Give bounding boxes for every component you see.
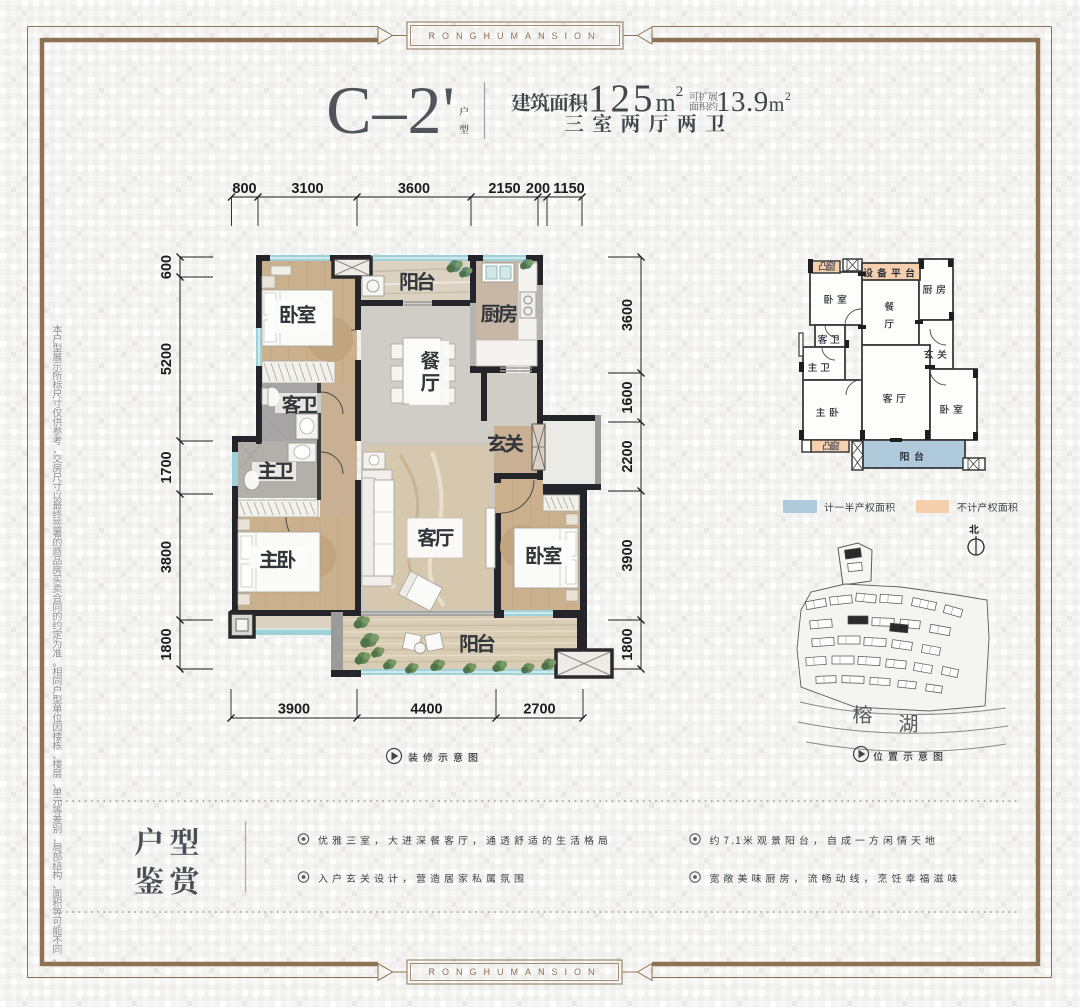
svg-text:3600: 3600 [398, 181, 430, 197]
svg-text:RONGHUMANSION: RONGHUMANSION [428, 31, 601, 41]
svg-text:1700: 1700 [159, 451, 175, 483]
svg-text:1800: 1800 [159, 628, 175, 660]
svg-text:5200: 5200 [159, 343, 175, 375]
svg-text:C–2': C–2' [326, 72, 456, 148]
svg-text:1800: 1800 [620, 628, 636, 660]
svg-text:600: 600 [159, 255, 175, 279]
svg-text:800: 800 [232, 181, 256, 197]
svg-text:2700: 2700 [523, 702, 555, 718]
svg-text:3800: 3800 [159, 541, 175, 573]
svg-text:RONGHUMANSION: RONGHUMANSION [428, 967, 601, 977]
svg-text:1150: 1150 [553, 181, 584, 197]
svg-text:2200: 2200 [620, 440, 636, 472]
svg-text:1600: 1600 [620, 381, 636, 413]
svg-text:4400: 4400 [410, 702, 442, 718]
svg-text:3100: 3100 [291, 181, 323, 197]
svg-text:3600: 3600 [620, 299, 636, 331]
svg-text:2150: 2150 [488, 181, 520, 197]
svg-text:3900: 3900 [620, 539, 636, 571]
svg-text:200: 200 [526, 181, 550, 197]
svg-text:3900: 3900 [278, 702, 310, 718]
